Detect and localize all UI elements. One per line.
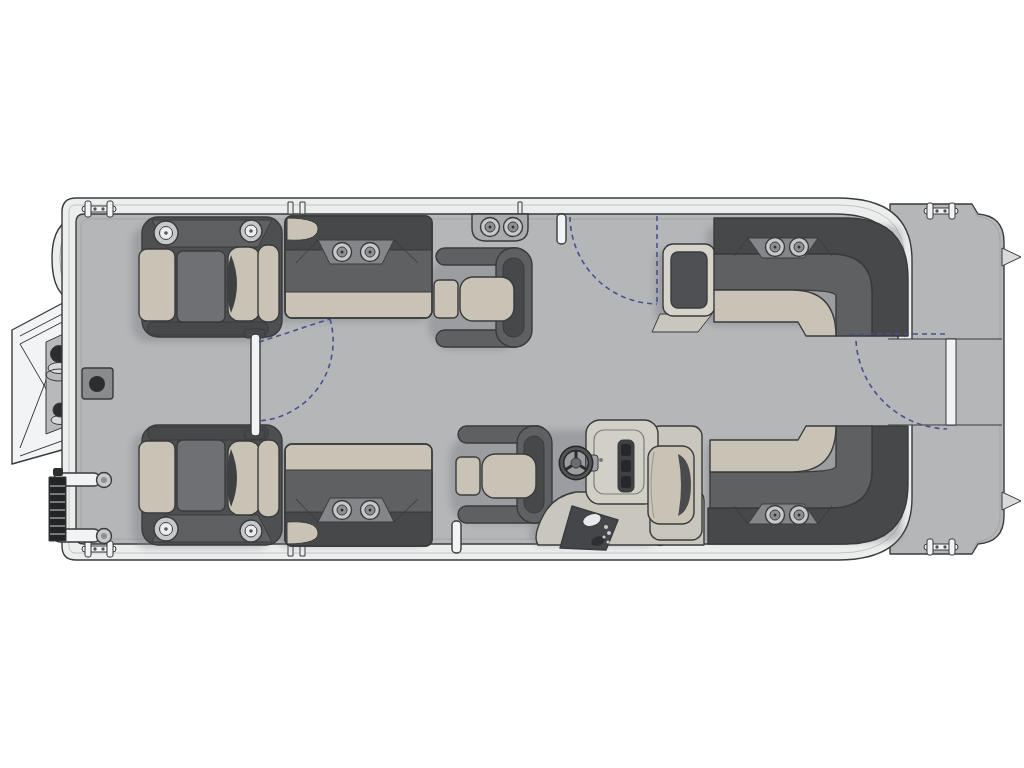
lounge-backrest-pad (434, 280, 458, 318)
gate-post (452, 521, 461, 553)
l-bench-bottom: Aft wraparound L-bench (bottom) (708, 426, 908, 544)
floorplan-stage: Pontoon boat floor plan — top-down deck … (0, 0, 1024, 768)
l-bench-top: Aft wraparound L-bench (top) (714, 218, 908, 336)
stern-gate-sill (946, 339, 956, 425)
lounge-seat-pad (460, 277, 514, 321)
helm-seat: Helm companion seat (648, 446, 694, 524)
lounge-top: Swingback lounge chair (top) (434, 248, 532, 347)
lounge-bottom: Swingback lounge chair (helm side) (456, 426, 552, 523)
gate-post (557, 214, 566, 244)
stern-gate-opening (888, 339, 1002, 425)
pontoon-floorplan-diagram: Pontoon boat floor plan — top-down deck … (0, 0, 1024, 768)
bench-top: Forward bench seat with cup holders (top… (285, 216, 432, 318)
gate-door-closed (251, 334, 260, 436)
bench-bottom: Forward bench seat with cup holders (bot… (285, 444, 432, 546)
wall-cup-holder: Rail-mounted double cup holder (472, 214, 528, 241)
captain-chair-bottom: Bow captain chair (bottom) (139, 425, 282, 545)
tow-base: Deck plate fitting (bow) (82, 368, 113, 399)
captain-chair-top: Bow captain chair (top) (139, 217, 282, 337)
